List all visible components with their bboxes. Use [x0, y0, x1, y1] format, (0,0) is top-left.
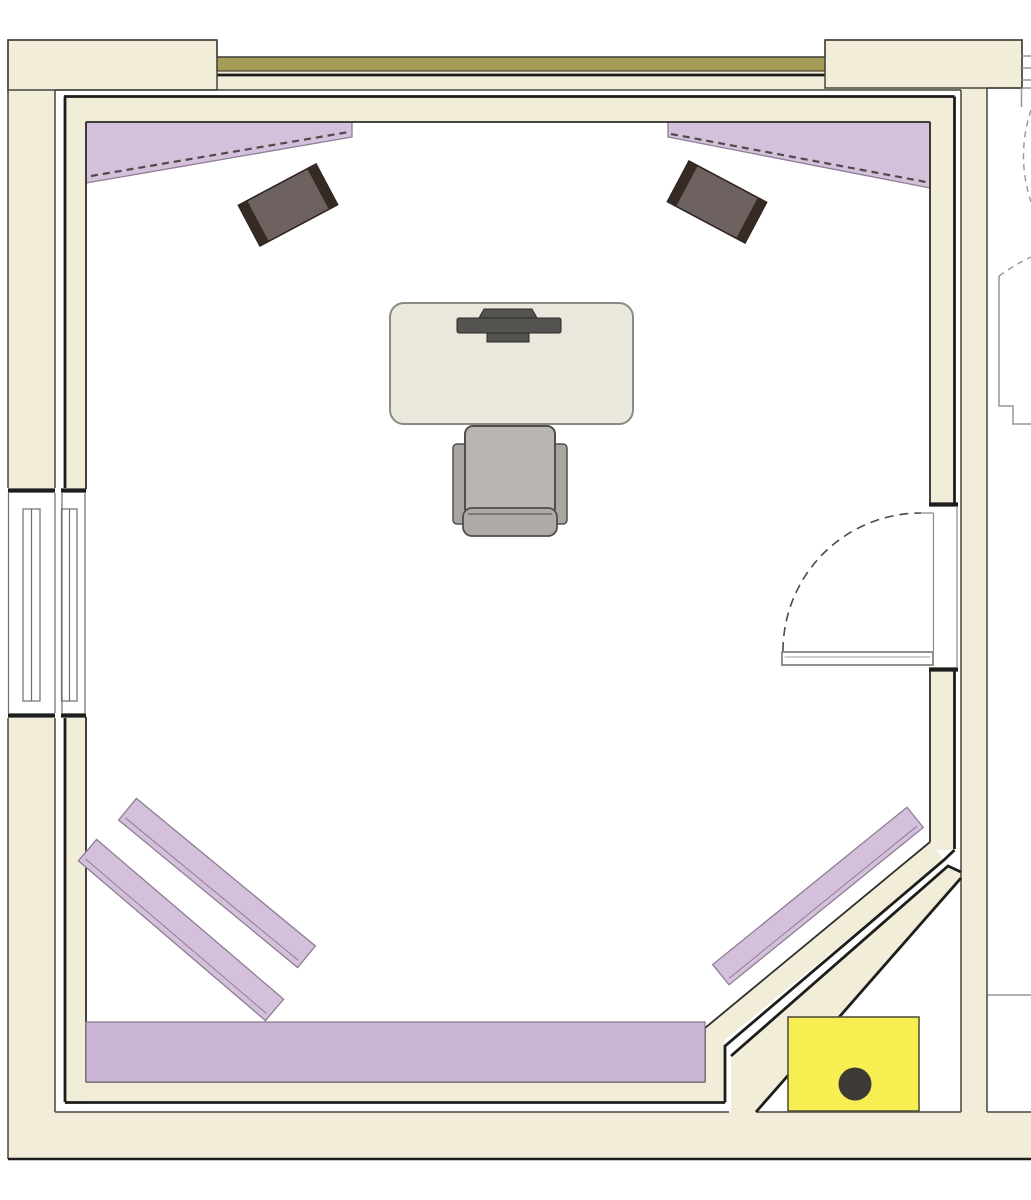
- window-jamb-lines: [9, 493, 86, 713]
- adjacent-room-lines: [988, 56, 1031, 995]
- outer-wall-right: [961, 90, 987, 1112]
- equipment-box-group: [788, 1017, 919, 1111]
- chair-backrest: [463, 508, 557, 536]
- adjacent-door-swing-arc-top: [1024, 110, 1031, 202]
- floorplan-drawing: [0, 0, 1031, 1200]
- outer-wall-outlines: [8, 40, 1031, 1159]
- speaker-right: [667, 161, 766, 243]
- inner-wall-right-upper: [930, 95, 956, 505]
- adjacent-door-swing-arc-mid: [999, 257, 1031, 276]
- adjacent-door-leaf: [999, 276, 1031, 424]
- inner-wall-left-lower: [64, 718, 86, 1104]
- chair: [453, 426, 567, 536]
- outer-wall-bottom: [8, 1112, 1031, 1159]
- door-leaf: [782, 652, 933, 665]
- inner-wall-top: [64, 95, 956, 122]
- desk-group: [390, 303, 633, 424]
- bass-trap-band-bottom: [86, 1022, 705, 1082]
- monitor-screen: [457, 318, 561, 333]
- outer-wall-left-upper: [8, 90, 55, 488]
- inner-wall-left-upper: [64, 95, 86, 488]
- adjacent-wall-layer-lines: [1022, 56, 1031, 88]
- door-swing-arc: [783, 513, 921, 651]
- speaker-left-body: [238, 164, 337, 246]
- equipment-box-dot: [839, 1068, 872, 1101]
- inner-wall-right-lower: [930, 668, 956, 850]
- top-lintel-strip: [217, 57, 825, 71]
- floorplan-canvas: [0, 0, 1031, 1200]
- monitor-stand: [487, 333, 529, 342]
- speaker-right-body: [667, 161, 766, 243]
- chair-seat: [465, 426, 555, 516]
- window: [9, 493, 86, 713]
- outer-wall-left-lower: [8, 718, 55, 1112]
- door: [782, 506, 957, 668]
- diffuser-bar-lower-edge: [85, 859, 266, 1014]
- speaker-left: [238, 164, 337, 246]
- monitor-back: [479, 309, 537, 318]
- acoustic-wedges: [86, 122, 930, 188]
- door-jamb-lines: [921, 506, 957, 668]
- outer-wall: [8, 40, 1031, 1159]
- outer-boundary-recess: [217, 40, 825, 57]
